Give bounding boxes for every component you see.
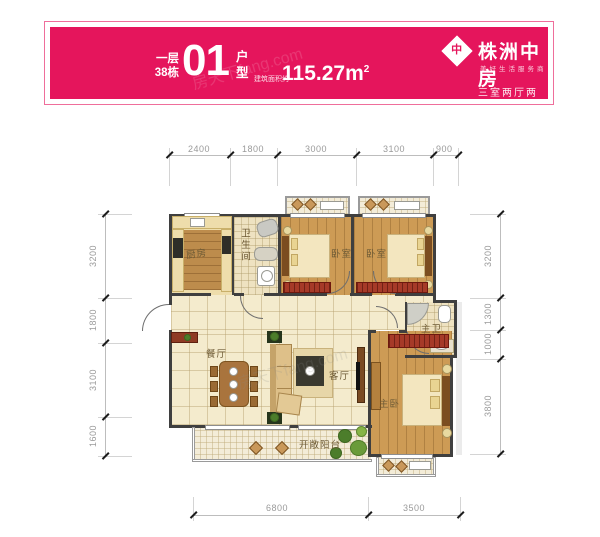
dim-top-4: 3100	[383, 144, 405, 154]
kitchen-label: 厨房	[185, 245, 208, 262]
stove-icon	[173, 238, 183, 258]
tv-icon	[356, 362, 360, 390]
living-window	[205, 425, 290, 430]
wall	[350, 293, 372, 296]
dim-left-4: 1600	[88, 421, 98, 451]
layout-summary: 三室两厅两卫	[478, 84, 548, 99]
bed2-headboard	[425, 236, 432, 276]
dim-left-3: 3100	[88, 365, 98, 395]
dining-chair	[210, 396, 218, 407]
dim-right-3: 1000	[483, 329, 493, 359]
balcony-rail	[192, 459, 372, 462]
wall	[169, 330, 172, 427]
dim-right-2: 1300	[483, 299, 493, 329]
wall	[395, 293, 436, 296]
nightstand	[442, 428, 452, 438]
bedroom1-wardrobe	[283, 282, 331, 293]
plant-icon	[350, 440, 367, 456]
dim-line-right	[500, 214, 501, 454]
toilet-bowl-icon	[261, 270, 273, 282]
kitchen-sink-icon	[190, 218, 205, 227]
master-balcony-window	[381, 454, 433, 459]
unit-suffix-bottom: 型	[236, 65, 249, 81]
bedroom1-label: 卧室	[331, 246, 352, 260]
wall	[454, 302, 457, 357]
master-bed-pillow	[430, 396, 440, 409]
floorplan-page: 房天下fang.com 一层 38栋 01 户 型 建筑面积约 115.27m2…	[0, 0, 600, 537]
plant-icon	[270, 413, 279, 422]
balcony-table	[394, 201, 420, 210]
wall	[278, 214, 281, 295]
living-label: 客厅	[329, 368, 350, 382]
plant-icon	[184, 334, 191, 341]
balcony-rail	[285, 196, 287, 214]
dim-line-left	[105, 214, 106, 456]
balcony-rail	[348, 196, 350, 214]
dim-ext	[193, 497, 194, 521]
bed2-pillow	[417, 254, 424, 266]
bathroom-label: 卫生间	[237, 228, 251, 263]
area-value: 115.27m2	[282, 62, 369, 86]
nightstand	[424, 226, 433, 235]
fridge-icon	[222, 236, 231, 254]
dining-label: 餐厅	[206, 346, 227, 360]
nightstand	[442, 364, 452, 374]
sofa-seam	[277, 388, 291, 389]
bed1-pillow	[291, 238, 298, 250]
balcony-table	[320, 201, 344, 210]
wall	[281, 293, 327, 296]
wall	[232, 216, 234, 295]
plant-icon	[270, 332, 279, 341]
wall	[399, 330, 407, 333]
dim-right-1: 3200	[483, 241, 493, 271]
unit-number: 01	[182, 35, 229, 87]
bedroom2-wardrobe	[356, 282, 428, 293]
floor-label: 一层	[145, 52, 179, 66]
master-wardrobe	[388, 334, 449, 348]
open-balcony-label: 开敞阳台	[299, 437, 341, 451]
dining-chair	[250, 396, 258, 407]
bed2-pillow	[417, 238, 424, 250]
balcony-rail	[192, 427, 195, 462]
dim-top-2: 1800	[242, 144, 264, 154]
banner: 房天下fang.com 一层 38栋 01 户 型 建筑面积约 115.27m2…	[50, 27, 548, 99]
dining-chair	[210, 381, 218, 392]
floor-building-label: 一层 38栋	[145, 52, 179, 80]
balcony-rail	[376, 474, 436, 477]
vanity-icon	[254, 247, 278, 261]
building-label: 38栋	[145, 66, 179, 80]
logo-glyph: 中	[452, 41, 463, 57]
master-bath-label: 主卫	[421, 321, 442, 335]
unit-suffix-top: 户	[236, 49, 249, 65]
dim-ext	[460, 497, 461, 521]
brand-logo-icon: 中	[441, 35, 472, 66]
master-bed-headboard	[442, 376, 450, 426]
plant-icon	[356, 426, 367, 437]
area-exponent: 2	[364, 64, 370, 75]
dim-bottom-2: 3500	[403, 503, 425, 513]
bedroom2-label: 卧室	[366, 246, 387, 260]
unit-suffix: 户 型	[236, 49, 249, 81]
nightstand	[283, 226, 292, 235]
plate-icon	[229, 393, 238, 402]
balcony-rail	[285, 196, 350, 198]
wall	[171, 293, 211, 296]
dim-ext	[368, 497, 369, 521]
balcony-rail	[358, 196, 430, 198]
entry-door-arc	[142, 304, 169, 331]
master-bed-pillow	[430, 379, 440, 392]
dim-top-5: 900	[436, 144, 453, 154]
bed1-headboard	[282, 236, 289, 276]
balcony-table	[409, 461, 431, 470]
balcony-rail	[358, 196, 360, 214]
dim-right-4: 3800	[483, 391, 493, 421]
dining-chair	[210, 366, 218, 377]
bedroom1-window	[290, 213, 345, 218]
dim-left-1: 3200	[88, 241, 98, 271]
dim-top-3: 3000	[305, 144, 327, 154]
banner-frame: 房天下fang.com 一层 38栋 01 户 型 建筑面积约 115.27m2…	[44, 21, 554, 105]
wall	[433, 214, 436, 302]
brand-tagline: 美好生活服务商	[480, 63, 547, 73]
dim-left-2: 1800	[88, 305, 98, 335]
dim-line-top	[169, 155, 458, 156]
dim-line-bottom	[193, 515, 460, 516]
dim-bottom-1: 6800	[266, 503, 288, 513]
chaise	[276, 392, 303, 415]
balcony-rail	[428, 196, 430, 214]
master-bedroom-label: 主卧	[379, 396, 400, 410]
wall	[264, 293, 281, 296]
bedroom2-window	[362, 213, 426, 218]
dim-top-1: 2400	[188, 144, 210, 154]
bed1-pillow	[291, 254, 298, 266]
